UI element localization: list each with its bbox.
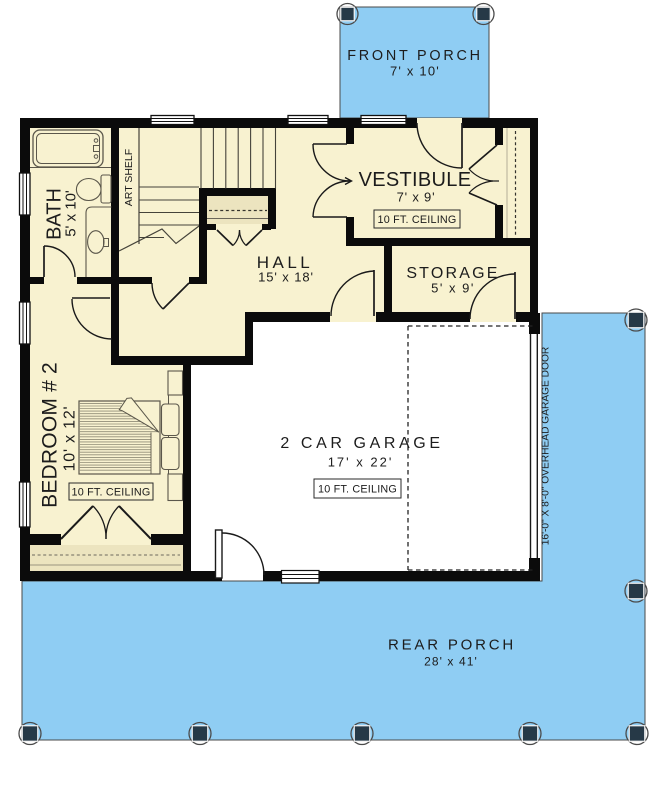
svg-text:2 CAR GARAGE: 2 CAR GARAGE [280,435,443,452]
svg-text:17' x 22': 17' x 22' [328,454,394,469]
svg-text:10 FT. CEILING: 10 FT. CEILING [318,483,397,495]
svg-text:REAR PORCH: REAR PORCH [388,636,516,653]
svg-text:BEDROOM # 2: BEDROOM # 2 [39,362,62,508]
svg-text:5' x 9': 5' x 9' [431,281,475,296]
svg-text:7' x 10': 7' x 10' [390,64,440,79]
svg-text:VESTIBULE: VESTIBULE [359,169,472,191]
svg-text:15' x 18': 15' x 18' [258,270,314,285]
svg-text:10' x 12': 10' x 12' [62,406,79,472]
svg-text:STORAGE: STORAGE [406,265,499,282]
svg-text:ART SHELF: ART SHELF [123,149,135,206]
svg-text:28' x 41': 28' x 41' [424,654,478,668]
svg-text:10 FT. CEILING: 10 FT. CEILING [378,214,457,226]
svg-text:5' x 10': 5' x 10' [63,190,80,237]
svg-text:16'-0" X 8'-0" OVERHEAD GARAGE: 16'-0" X 8'-0" OVERHEAD GARAGE DOOR [541,347,552,546]
svg-text:FRONT PORCH: FRONT PORCH [347,48,483,64]
svg-text:7' x 9': 7' x 9' [397,190,436,205]
svg-text:10 FT. CEILING: 10 FT. CEILING [72,486,151,498]
